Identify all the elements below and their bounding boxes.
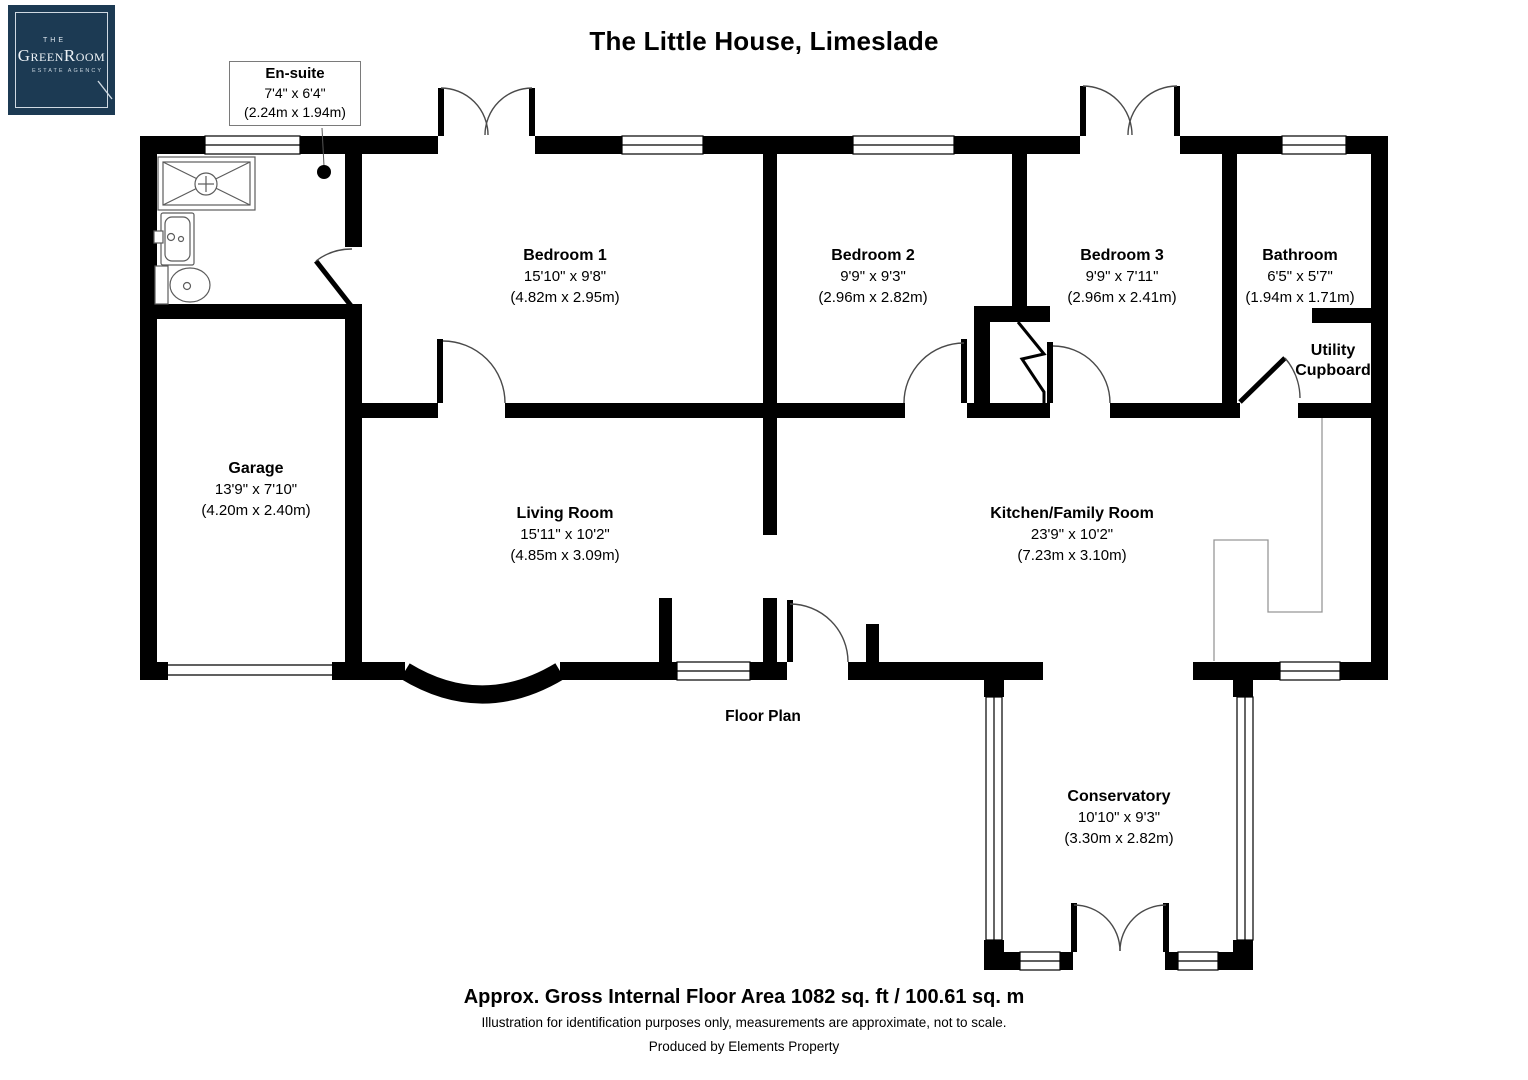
kitchen-counter [1214,418,1322,661]
room-name: Utility [1295,341,1371,361]
room-name: Living Room [510,503,619,524]
toilet [155,266,210,304]
producer-caption: Produced by Elements Property [0,1039,1488,1054]
garage-door [168,665,332,675]
room-label-living-room: Living Room 15'11" x 10'2" (4.85m x 3.09… [510,503,619,566]
room-name: Bedroom 2 [818,245,927,266]
floor-plan-drawing [0,0,1528,1080]
bow-window-wall [405,671,560,695]
room-size-metric: (2.24m x 1.94m) [230,103,360,122]
room-name: Cupboard [1295,361,1371,381]
bifold-cupboard-door [1018,322,1044,403]
room-size-metric: (2.96m x 2.41m) [1067,287,1176,308]
room-name: Conservatory [1064,786,1173,807]
room-size-imperial: 23'9" x 10'2" [990,524,1154,545]
room-name: Bedroom 1 [510,245,619,266]
room-size-imperial: 13'9" x 7'10" [201,479,310,500]
room-name: Bedroom 3 [1067,245,1176,266]
sink-basin [154,213,194,265]
interior-walls [140,154,1371,662]
shower-tray [158,157,255,210]
room-label-conservatory: Conservatory 10'10" x 9'3" (3.30m x 2.82… [1064,786,1173,849]
gross-area-caption: Approx. Gross Internal Floor Area 1082 s… [0,986,1488,1009]
room-size-metric: (4.82m x 2.95m) [510,287,619,308]
room-label-garage: Garage 13'9" x 7'10" (4.20m x 2.40m) [201,458,310,521]
room-size-imperial: 15'10" x 9'8" [510,266,619,287]
room-name: En-suite [230,64,360,84]
room-name: Garage [201,458,310,479]
room-size-imperial: 15'11" x 10'2" [510,524,619,545]
room-size-metric: (4.20m x 2.40m) [201,500,310,521]
room-size-imperial: 6'5" x 5'7" [1245,266,1354,287]
room-label-bedroom-3: Bedroom 3 9'9" x 7'11" (2.96m x 2.41m) [1067,245,1176,308]
room-size-imperial: 10'10" x 9'3" [1064,807,1173,828]
room-size-imperial: 7'4" x 6'4" [230,84,360,103]
floor-plan-caption: Floor Plan [725,708,801,726]
room-size-metric: (7.23m x 3.10m) [990,545,1154,566]
room-label-bedroom-1: Bedroom 1 15'10" x 9'8" (4.82m x 2.95m) [510,245,619,308]
disclaimer-caption: Illustration for identification purposes… [0,1015,1488,1030]
room-size-metric: (2.96m x 2.82m) [818,287,927,308]
room-label-utility-cupboard: Utility Cupboard [1295,341,1371,381]
room-label-ensuite: En-suite 7'4" x 6'4" (2.24m x 1.94m) [229,61,361,126]
room-size-metric: (4.85m x 3.09m) [510,545,619,566]
room-name: Kitchen/Family Room [990,503,1154,524]
room-size-metric: (1.94m x 1.71m) [1245,287,1354,308]
room-label-kitchen-family-room: Kitchen/Family Room 23'9" x 10'2" (7.23m… [990,503,1154,566]
room-name: Bathroom [1245,245,1354,266]
floor-plan-page: THE GreenRoom ESTATE AGENCY The Little H… [0,0,1528,1080]
room-size-imperial: 9'9" x 9'3" [818,266,927,287]
room-size-imperial: 9'9" x 7'11" [1067,266,1176,287]
room-label-bathroom: Bathroom 6'5" x 5'7" (1.94m x 1.71m) [1245,245,1354,308]
room-label-bedroom-2: Bedroom 2 9'9" x 9'3" (2.96m x 2.82m) [818,245,927,308]
room-size-metric: (3.30m x 2.82m) [1064,828,1173,849]
